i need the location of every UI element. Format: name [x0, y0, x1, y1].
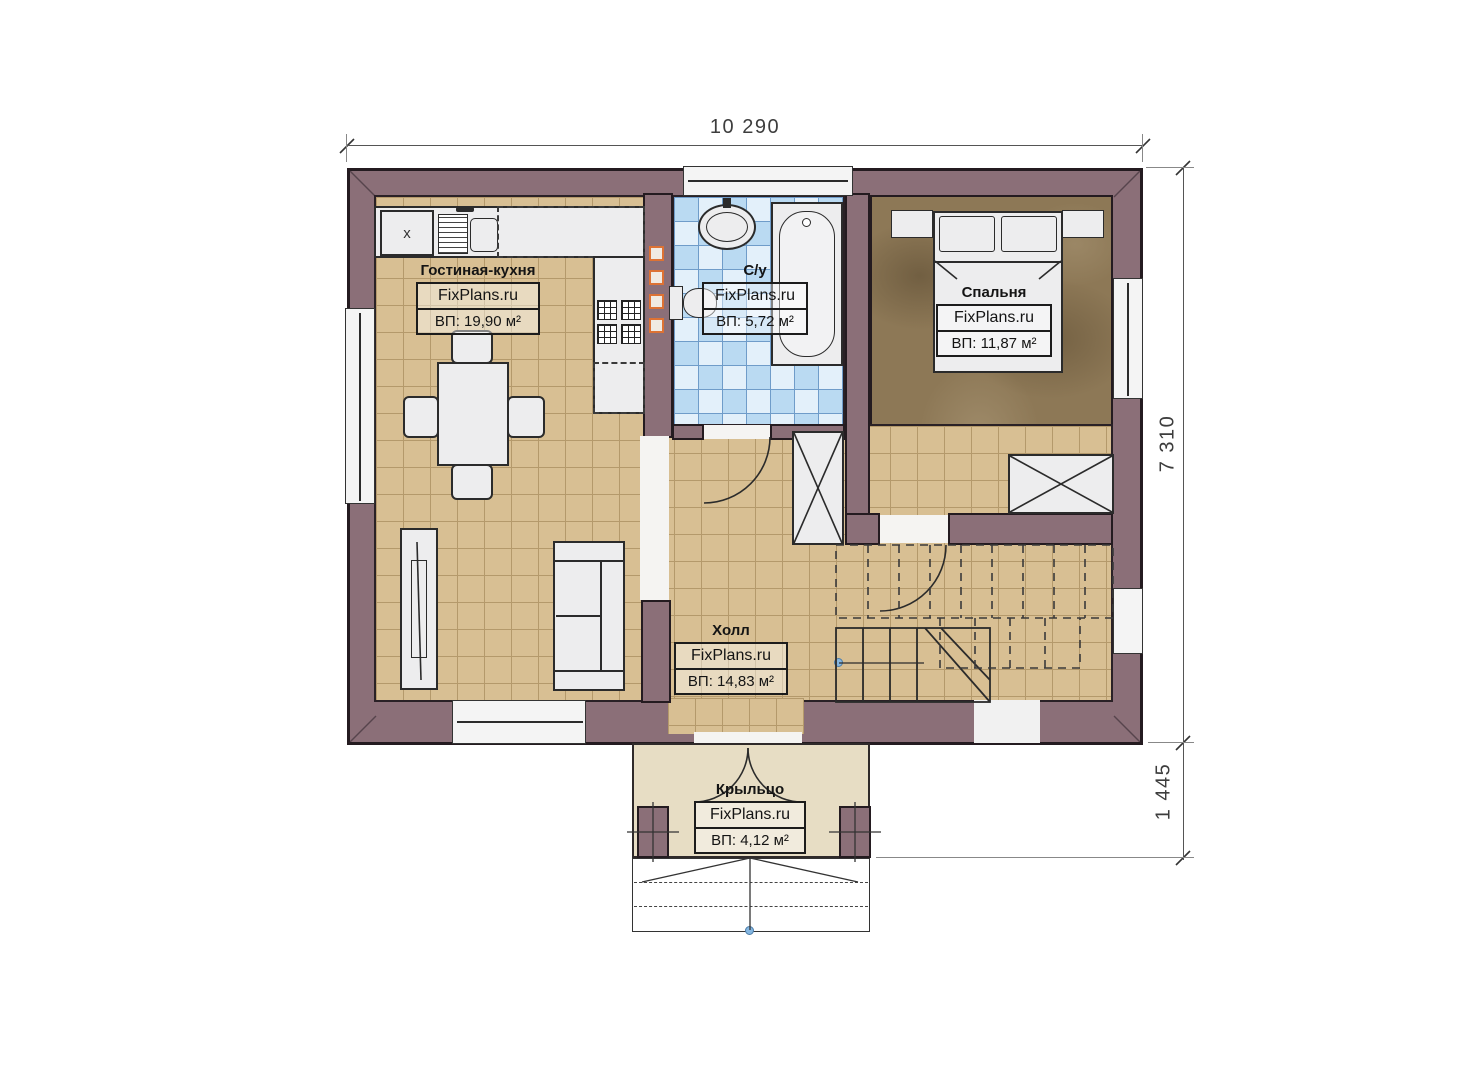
kitchen-sink-bowl [470, 218, 498, 252]
porch-column [637, 806, 669, 858]
room-name: Спальня [936, 284, 1052, 301]
wall-bedroom-left [845, 193, 870, 515]
sofa-armrest-line [555, 560, 623, 562]
window-frame-line [688, 180, 848, 182]
window-bottom-right [974, 700, 1040, 743]
bathroom-sink-basin [706, 212, 748, 242]
room-area: ВП: 19,90 м² [418, 310, 538, 333]
chair [403, 396, 439, 438]
room-name: С/у [702, 262, 808, 279]
pillow [939, 216, 995, 252]
window-frame-line [457, 721, 583, 723]
wall-living-hall-stub [641, 600, 671, 703]
wall-bath-bottom-left [672, 424, 704, 440]
room-area: ВП: 5,72 м² [704, 310, 806, 333]
dim-porch-label: 1 445 [1153, 752, 1176, 832]
chair [451, 330, 493, 364]
window-frame-line [1127, 283, 1129, 396]
room-area: ВП: 14,83 м² [676, 670, 786, 693]
wall-bedroom-bottom-left [845, 513, 880, 545]
toilet-tank [669, 286, 683, 320]
vent-block [649, 318, 664, 333]
dining-table [437, 362, 509, 466]
kitchen-upper-cabinet-right [593, 362, 645, 414]
room-name: Холл [674, 622, 788, 639]
hall-wardrobe [792, 431, 844, 545]
stove-burner [597, 300, 617, 320]
vent-block [649, 246, 664, 261]
stove-burner [621, 300, 641, 320]
kitchen-sink-drainer [438, 214, 468, 254]
brand-watermark: FixPlans.ru [696, 803, 804, 829]
window-top-bathroom [683, 166, 853, 196]
stairs-start-marker [834, 658, 843, 667]
dim-extension [1148, 742, 1194, 743]
room-info-box: FixPlans.ru ВП: 5,72 м² [702, 282, 808, 335]
vent-block [649, 270, 664, 285]
living-hall-passage [640, 436, 669, 600]
porch-steps [632, 858, 870, 932]
bedroom-wardrobe [1008, 454, 1114, 514]
room-label-hall: Холл FixPlans.ru ВП: 14,83 м² [674, 622, 788, 695]
room-info-box: FixPlans.ru ВП: 14,83 м² [674, 642, 788, 695]
kitchen-upper-cabinets [497, 206, 645, 258]
dim-extension [1146, 167, 1194, 168]
window-bottom-living [452, 700, 586, 744]
dim-extension [1142, 134, 1143, 162]
window-left-living [345, 308, 375, 504]
stove-burner [621, 324, 641, 344]
nightstand [891, 210, 933, 238]
porch-step-line [634, 882, 868, 883]
dim-height-label: 7 310 [1157, 404, 1180, 484]
room-label-bedroom: Спальня FixPlans.ru ВП: 11,87 м² [936, 284, 1052, 357]
porch-column [839, 806, 871, 858]
brand-watermark: FixPlans.ru [676, 644, 786, 670]
brand-watermark: FixPlans.ru [938, 306, 1050, 332]
dim-extension [876, 857, 1194, 858]
dim-extension [346, 134, 347, 162]
tv-screen [411, 560, 427, 658]
brand-watermark: FixPlans.ru [704, 284, 806, 310]
chair [451, 464, 493, 500]
room-label-living: Гостиная-кухня FixPlans.ru ВП: 19,90 м² [416, 262, 540, 335]
room-info-box: FixPlans.ru ВП: 19,90 м² [416, 282, 540, 335]
room-info-box: FixPlans.ru ВП: 4,12 м² [694, 801, 806, 854]
floor-plan: x [0, 0, 1473, 1080]
bathroom-door-threshold [704, 425, 770, 439]
stove-burner [597, 324, 617, 344]
bed-fold-line [934, 261, 1062, 263]
room-label-bathroom: С/у FixPlans.ru ВП: 5,72 м² [702, 262, 808, 335]
porch-step-line [634, 906, 868, 907]
wall-bedroom-bottom-right [948, 513, 1113, 545]
brand-watermark: FixPlans.ru [418, 284, 538, 310]
vent-block [649, 294, 664, 309]
room-area: ВП: 4,12 м² [696, 829, 804, 852]
room-info-box: FixPlans.ru ВП: 11,87 м² [936, 304, 1052, 357]
window-right-bedroom [1113, 278, 1143, 399]
room-label-porch: Крыльцо FixPlans.ru ВП: 4,12 м² [694, 781, 806, 854]
pillow [1001, 216, 1057, 252]
room-name: Крыльцо [694, 781, 806, 798]
chair [507, 396, 545, 438]
room-area: ВП: 11,87 м² [938, 332, 1050, 355]
dim-line-top [347, 145, 1143, 146]
porch-marker [745, 926, 754, 935]
cabinet-marker: x [403, 225, 411, 242]
doorway-floor-patch [668, 698, 804, 734]
window-right-hall [1113, 588, 1143, 654]
sofa-cushion-line [556, 615, 601, 617]
bedroom-door-threshold [880, 515, 948, 543]
nightstand [1062, 210, 1104, 238]
sofa-armrest-line [555, 670, 623, 672]
bathtub-faucet [802, 218, 811, 227]
sink-faucet [723, 198, 731, 208]
dim-width-label: 10 290 [595, 116, 895, 139]
kitchen-faucet [456, 207, 474, 212]
room-name: Гостиная-кухня [416, 262, 540, 279]
dim-line-right [1183, 167, 1184, 860]
kitchen-cabinet-x: x [380, 210, 434, 256]
window-frame-line [359, 313, 361, 501]
